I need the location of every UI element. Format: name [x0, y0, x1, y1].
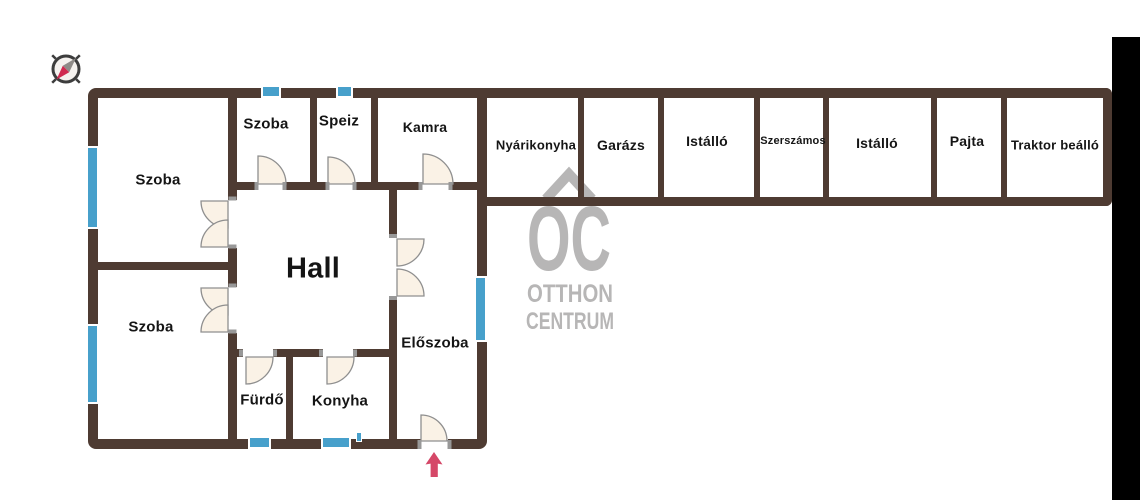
window: [86, 146, 99, 229]
window: [248, 436, 271, 449]
wall: [451, 182, 477, 190]
window: [86, 324, 99, 404]
entrance-arrow-icon: [426, 452, 443, 477]
entrance-opening: [421, 438, 448, 451]
room-label-traktor-beallo: Traktor beálló: [1011, 138, 1099, 153]
compass-rose-icon: [52, 55, 80, 83]
wall: [285, 182, 328, 190]
wall: [353, 349, 397, 357]
wall: [273, 349, 323, 357]
wall: [228, 182, 257, 190]
room-label-pajta: Pajta: [950, 133, 984, 149]
wall: [228, 248, 237, 287]
window: [321, 436, 351, 449]
wall: [823, 98, 829, 197]
room-label-szoba-1: Szoba: [135, 172, 180, 189]
side-black-bar: [1112, 37, 1140, 500]
wall: [98, 262, 228, 270]
room-label-konyha: Konyha: [312, 393, 368, 410]
wall: [931, 98, 937, 197]
window: [356, 432, 362, 442]
watermark-line1: OTTHON: [527, 280, 613, 308]
watermark-line2: CENTRUM: [526, 308, 614, 335]
floor-plan: OC OTTHON CENTRUM: [0, 0, 1140, 500]
wall: [389, 190, 397, 238]
wall: [355, 182, 421, 190]
wall: [389, 296, 397, 439]
room-label-furdo: Fürdő: [240, 392, 284, 409]
compass-needle-north: [63, 58, 76, 72]
room-label-eloszoba: Előszoba: [401, 335, 468, 352]
room-label-istallo-2: Istálló: [856, 135, 898, 151]
wall: [754, 98, 760, 197]
wall: [578, 98, 584, 197]
window: [474, 276, 487, 342]
room-label-hall: Hall: [286, 253, 340, 286]
room-label-szoba-2: Szoba: [128, 319, 173, 336]
wall: [1001, 98, 1007, 197]
wall: [658, 98, 664, 197]
room-label-istallo-1: Istálló: [686, 133, 728, 149]
compass-needle-south: [57, 66, 70, 80]
window: [261, 85, 281, 98]
wall: [228, 349, 243, 357]
room-label-szerszamos: Szerszámos: [760, 135, 826, 147]
wall: [310, 98, 317, 182]
room-label-garazs: Garázs: [597, 137, 645, 153]
room-label-speiz: Speiz: [319, 113, 359, 130]
wall: [371, 98, 378, 182]
room-label-szoba-3: Szoba: [243, 116, 288, 133]
window: [336, 85, 353, 98]
wall: [286, 357, 293, 439]
room-label-nyarikonyha: Nyárikonyha: [496, 138, 576, 153]
room-label-kamra: Kamra: [403, 119, 448, 135]
